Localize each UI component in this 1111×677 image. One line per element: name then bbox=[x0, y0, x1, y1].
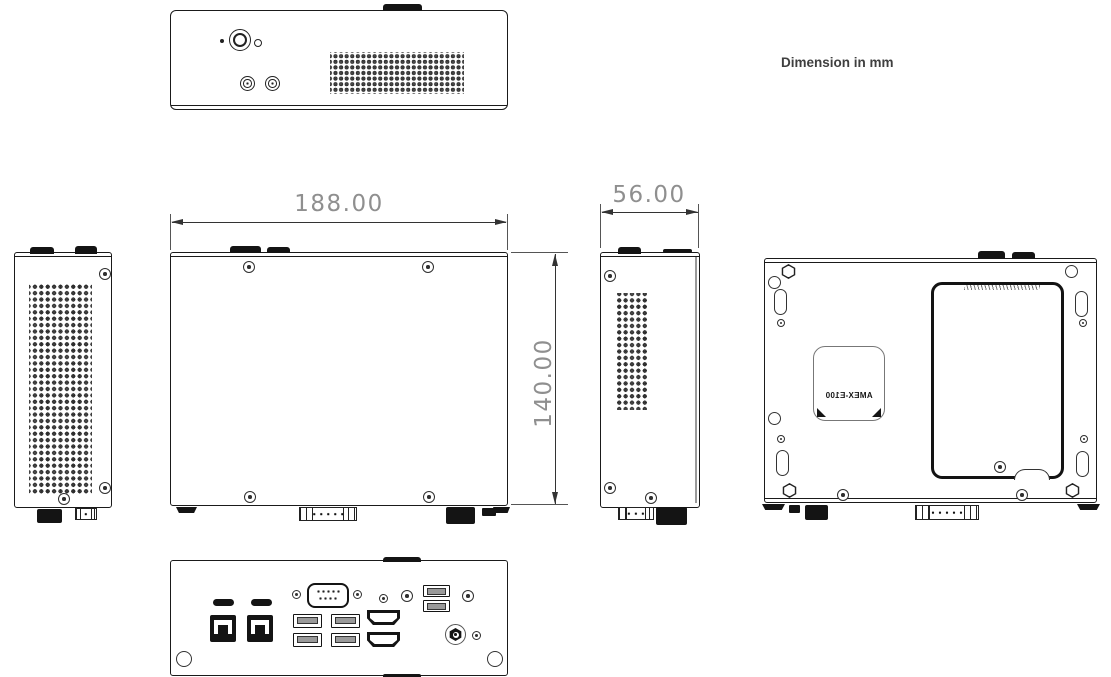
screw bbox=[472, 631, 481, 640]
screw bbox=[423, 491, 435, 503]
foot bbox=[1077, 504, 1100, 510]
panel-edge-line bbox=[171, 105, 507, 106]
screw bbox=[99, 482, 111, 494]
dc-jack-edge bbox=[446, 507, 475, 524]
dimension-line bbox=[172, 222, 506, 223]
finger-notch bbox=[1014, 469, 1050, 480]
plate-corner-mark bbox=[817, 408, 826, 417]
antenna-tab bbox=[978, 251, 1005, 259]
screw bbox=[994, 461, 1006, 473]
power-button bbox=[229, 29, 251, 51]
usb-a-port bbox=[331, 614, 360, 628]
thumbscrew-hole bbox=[487, 651, 503, 667]
foot bbox=[762, 504, 785, 510]
screw bbox=[99, 268, 111, 280]
mounting-hole bbox=[768, 412, 781, 425]
view-top bbox=[170, 252, 508, 506]
panel-edge-shade bbox=[695, 257, 697, 503]
dsub-edge bbox=[915, 505, 979, 520]
dc-jack-nut bbox=[449, 628, 462, 641]
dsub-edge bbox=[75, 508, 97, 520]
view-front-panel bbox=[170, 10, 508, 110]
arrowhead bbox=[601, 209, 613, 215]
antenna-tab bbox=[618, 247, 641, 254]
dc-power-jack bbox=[445, 624, 466, 645]
dimension-line bbox=[602, 212, 698, 213]
connector-edge bbox=[482, 508, 496, 516]
arrowhead bbox=[171, 219, 183, 225]
dsub-edge bbox=[618, 507, 654, 520]
view-right-side bbox=[600, 252, 700, 508]
extension-line bbox=[507, 214, 508, 250]
view-rear-panel bbox=[170, 560, 508, 676]
thumbscrew-hole bbox=[176, 651, 192, 667]
dimension-depth-label: 140.00 bbox=[531, 323, 557, 443]
screw bbox=[244, 491, 256, 503]
view-left-side bbox=[14, 252, 112, 508]
power-led bbox=[220, 39, 224, 43]
vent-grille bbox=[29, 284, 92, 494]
sim-slot bbox=[251, 599, 272, 606]
antenna-tab bbox=[383, 4, 422, 11]
mounting-hole bbox=[1065, 265, 1078, 278]
screw bbox=[777, 435, 785, 443]
antenna-tab bbox=[383, 557, 421, 562]
view-bottom: AMEX-E100 bbox=[764, 258, 1097, 503]
mounting-hole bbox=[768, 276, 781, 289]
technical-drawing-canvas: Dimension in mm bbox=[0, 0, 1111, 677]
extension-line bbox=[511, 504, 568, 505]
usb-a-port bbox=[331, 633, 360, 647]
screw bbox=[604, 482, 616, 494]
mounting-slot bbox=[1076, 451, 1089, 477]
hex-cutout bbox=[781, 264, 796, 279]
screw bbox=[777, 319, 785, 327]
hex-cutout bbox=[782, 483, 797, 498]
lan-rj45-port bbox=[210, 615, 236, 642]
usb-a-port bbox=[423, 600, 450, 612]
model-label-plate: AMEX-E100 bbox=[813, 346, 885, 421]
dimension-width-label: 188.00 bbox=[239, 191, 439, 217]
screw bbox=[422, 261, 434, 273]
hex-cutout bbox=[1065, 483, 1080, 498]
screw bbox=[1080, 435, 1088, 443]
reset-pinhole bbox=[254, 39, 262, 47]
antenna-tab bbox=[230, 246, 261, 253]
connector-edge bbox=[789, 505, 800, 513]
dc-jack-edge bbox=[656, 507, 687, 525]
panel-edge-line bbox=[765, 498, 1096, 499]
arrowhead bbox=[552, 254, 558, 266]
panel-edge-line bbox=[601, 256, 699, 257]
sim-slot bbox=[213, 599, 234, 606]
usb-a-port bbox=[423, 585, 450, 597]
access-cover bbox=[931, 282, 1064, 479]
units-note: Dimension in mm bbox=[781, 55, 894, 70]
lan-rj45-port bbox=[247, 615, 273, 642]
mounting-slot bbox=[774, 289, 787, 315]
screw bbox=[1079, 319, 1087, 327]
panel-edge-line bbox=[15, 256, 111, 257]
audio-jack bbox=[265, 76, 280, 91]
screw bbox=[462, 590, 474, 602]
jack-screw bbox=[292, 590, 301, 599]
screw bbox=[604, 270, 616, 282]
screw bbox=[837, 489, 849, 501]
screw bbox=[243, 261, 255, 273]
antenna-tab bbox=[267, 247, 290, 253]
dimension-height-label: 56.00 bbox=[589, 182, 709, 208]
mounting-slot bbox=[1075, 291, 1088, 317]
antenna-tab bbox=[75, 246, 97, 254]
screw bbox=[1016, 489, 1028, 501]
arrowhead bbox=[495, 219, 507, 225]
cover-hatch bbox=[964, 285, 1040, 290]
screw bbox=[401, 590, 413, 602]
foot bbox=[176, 507, 197, 513]
screw bbox=[379, 594, 388, 603]
antenna-tab bbox=[1012, 252, 1035, 259]
panel-edge-line bbox=[171, 256, 507, 257]
usb-a-port bbox=[293, 633, 322, 647]
hdmi-port bbox=[367, 610, 400, 625]
jack-screw bbox=[353, 590, 362, 599]
hdmi-port bbox=[367, 632, 400, 647]
arrowhead bbox=[686, 209, 698, 215]
panel-edge-line bbox=[765, 262, 1096, 263]
model-label: AMEX-E100 bbox=[814, 391, 884, 400]
audio-jack bbox=[240, 76, 255, 91]
screw bbox=[645, 492, 657, 504]
dc-jack-edge bbox=[805, 505, 828, 520]
dc-jack-edge bbox=[37, 509, 62, 523]
vent-grille bbox=[616, 293, 648, 410]
dsub-edge bbox=[299, 507, 357, 521]
screw bbox=[58, 493, 70, 505]
arrowhead bbox=[552, 492, 558, 504]
extension-line bbox=[698, 204, 699, 248]
plate-corner-mark bbox=[872, 408, 881, 417]
extension-line bbox=[511, 252, 568, 253]
mounting-slot bbox=[776, 450, 789, 476]
usb-a-port bbox=[293, 614, 322, 628]
com-db9-port bbox=[307, 583, 349, 608]
antenna-tab bbox=[30, 247, 54, 254]
antenna-tab bbox=[663, 249, 692, 253]
vent-grille bbox=[330, 52, 464, 94]
